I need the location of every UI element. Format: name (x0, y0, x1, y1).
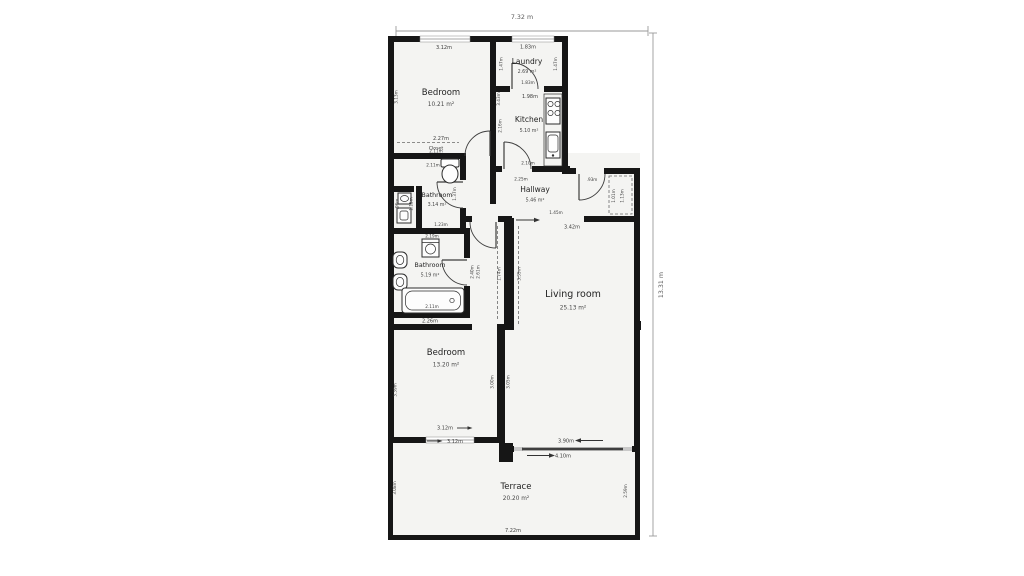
wall (504, 218, 514, 330)
dim-bathroom1-top: 2.11m (426, 163, 439, 168)
dim-living-top: 3.42m (564, 225, 580, 231)
wall (490, 159, 496, 204)
room-area-kitchen: 5.10 m² (520, 128, 539, 134)
toilet-icon (441, 159, 459, 183)
overall-width-dimension: 7.32 m (396, 14, 648, 36)
dim-laundry-door: 1.83m (521, 80, 534, 85)
basin-icon (393, 252, 407, 268)
dim-hall-closet-a: 1.01m (611, 189, 616, 202)
dim-entry-door: .93m (587, 177, 598, 182)
dim-kitchen-top: 1.98m (522, 94, 538, 100)
dim-living-door-b: 4.10m (555, 454, 571, 460)
dim-hallway-left: 2.25m (514, 177, 527, 182)
dim-kitchen-left: 2.16m (498, 119, 503, 132)
sink-icon (546, 132, 560, 158)
dim-terrace-left: 3.08m (392, 481, 397, 494)
wall (466, 216, 472, 222)
dim-bedroom1-bottom: 2.27m (433, 136, 449, 142)
room-name-living: Living room (545, 289, 601, 300)
wall (388, 535, 640, 540)
room-area-laundry: 2.69 m² (518, 69, 537, 75)
room-name-bedroom1: Bedroom (422, 88, 460, 98)
sliding-door-living (514, 447, 632, 451)
dim-living-left-lower: 3.05m (506, 375, 511, 388)
room-name-bathroom2: Bathroom (415, 262, 446, 269)
wall (544, 86, 568, 92)
wall (464, 228, 470, 258)
dim-bathtub: 2.11m (425, 304, 438, 309)
bathtub-icon (402, 288, 464, 313)
dim-bedroom2-left: 3.39m (393, 383, 398, 396)
dim-bedroom2-window-b: 3.12m (447, 439, 463, 445)
room-name-bathroom1: Bathroom (422, 192, 453, 199)
dim-laundry-top: 1.83m (520, 45, 536, 51)
dim-corridor: 1.74m (497, 267, 502, 280)
floor-plan-page: 7.32 m 13.31 m (0, 0, 1024, 576)
dim-kitchen-door: 2.10m (521, 161, 534, 166)
dim-bathroom2-bottom: 2.26m (422, 319, 438, 325)
dim-bedroom1-left: 3.13m (394, 90, 399, 103)
dim-bathroom2-right-outer: 2.61m (476, 265, 481, 278)
wall (508, 446, 514, 452)
dim-bathroom1-right: 1.37m (452, 187, 457, 200)
room-name-terrace: Terrace (500, 482, 532, 492)
wall-nub (634, 321, 641, 330)
dim-terrace-right: 2.59m (623, 484, 628, 497)
wall (499, 443, 513, 462)
wall (388, 437, 426, 443)
dim-laundry-right: 1.47m (553, 57, 558, 70)
wall (490, 86, 510, 92)
overall-height-dimension: 13.31 m (649, 33, 665, 536)
floor-plan-canvas: 7.32 m 13.31 m (0, 0, 1024, 576)
overall-height-label: 13.31 m (658, 272, 665, 298)
dim-bathroom2-top: 2.19m (425, 234, 438, 239)
washer-icon (422, 239, 439, 257)
wall (634, 168, 640, 446)
room-name-hallway: Hallway (520, 185, 550, 194)
wall (562, 36, 568, 172)
room-name-kitchen: Kitchen (515, 115, 543, 124)
dim-living-opening: 1.45m (549, 210, 562, 215)
dim-bedroom1-top: 3.12m (436, 45, 452, 51)
wall (460, 208, 466, 228)
wall (388, 324, 472, 330)
dim-bathroom1-door: 1.23m (434, 222, 447, 227)
room-area-bedroom1: 10.21 m² (428, 101, 454, 108)
room-name-laundry: Laundry (512, 57, 543, 66)
room-name-bedroom2: Bedroom (427, 348, 465, 358)
dim-terrace-bottom: 7.22m (505, 528, 521, 534)
wall (635, 452, 640, 540)
wall (632, 446, 640, 452)
wall (584, 216, 640, 222)
wall (562, 168, 576, 174)
wall (497, 324, 505, 443)
room-area-bedroom2: 13.20 m² (433, 362, 459, 369)
room-area-bathroom2: 5.19 m² (421, 273, 440, 279)
dim-bedroom2-window-a: 3.12m (437, 426, 453, 432)
wall (460, 159, 466, 180)
dim-bathroom2-right-inner: 2.40m (470, 265, 475, 278)
wall (388, 153, 466, 159)
dim-bedroom2-right: 3.00m (490, 375, 495, 388)
dim-bedroom1-right: 3.43m (496, 92, 501, 105)
room-area-living: 25.13 m² (560, 305, 586, 312)
dim-wc-width: .96m (395, 199, 400, 210)
dim-living-door-a: 3.90m (558, 439, 574, 445)
dim-laundry-left: 1.47m (499, 57, 504, 70)
overall-width-label: 7.32 m (511, 14, 533, 21)
dim-living-left-upper: 3.35m (517, 267, 522, 280)
room-area-bathroom1: 3.14 m² (428, 202, 447, 208)
room-area-hallway: 5.46 m² (526, 198, 545, 204)
room-area-terrace: 20.20 m² (503, 495, 529, 502)
dim-hall-closet-b: 1.13m (620, 189, 625, 202)
wall (388, 186, 414, 192)
dim-closet: 2.11m (429, 148, 442, 153)
stove-icon (546, 98, 560, 124)
dim-wc-height: 1.15m (409, 197, 414, 210)
wall (474, 437, 502, 443)
